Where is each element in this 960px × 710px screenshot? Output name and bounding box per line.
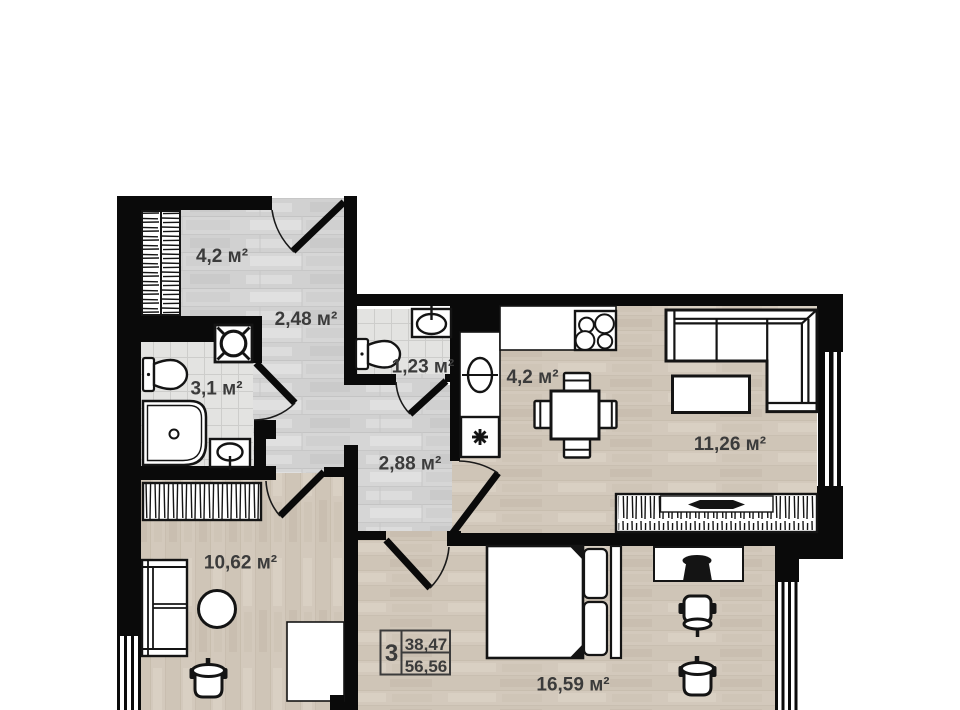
svg-text:1,23 м²: 1,23 м²: [392, 357, 455, 378]
svg-text:11,26 м²: 11,26 м²: [694, 434, 766, 455]
svg-text:3,1 м²: 3,1 м²: [190, 379, 242, 400]
svg-text:10,62 м²: 10,62 м²: [204, 553, 277, 574]
svg-text:4,2 м²: 4,2 м²: [196, 246, 248, 267]
svg-text:56,56: 56,56: [405, 657, 448, 676]
svg-text:4,2 м²: 4,2 м²: [506, 367, 558, 388]
svg-text:2,48 м²: 2,48 м²: [275, 309, 338, 330]
svg-text:38,47: 38,47: [405, 635, 448, 654]
svg-text:3: 3: [385, 640, 398, 667]
svg-text:2,88 м²: 2,88 м²: [379, 454, 442, 475]
svg-text:16,59 м²: 16,59 м²: [536, 675, 609, 696]
